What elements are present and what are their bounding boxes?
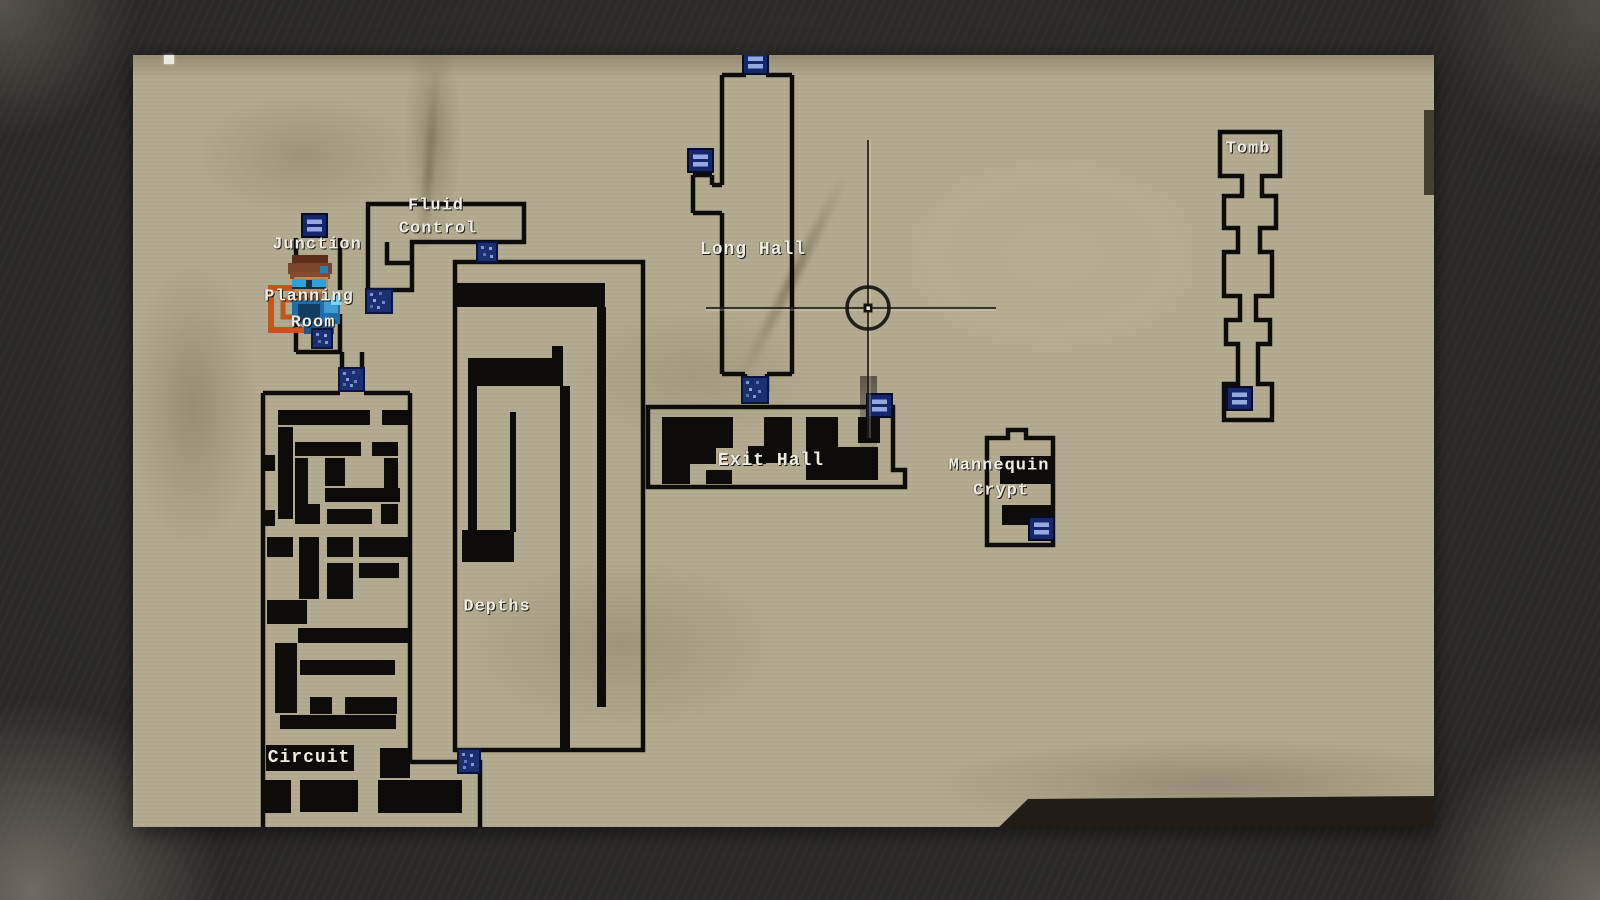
paper-tear-shadow xyxy=(997,796,1434,827)
room-label-tomb: Tomb xyxy=(1226,140,1271,159)
paper-edge-shadow xyxy=(1424,110,1434,195)
room-label-planning-room-line2: Room xyxy=(291,314,336,333)
map-paper[interactable]: Junction Fluid Control Planning Room Lon… xyxy=(133,55,1434,827)
door-marker-tomb-south xyxy=(1227,387,1252,410)
room-label-depths: Depths xyxy=(463,598,530,617)
room-label-fluid-control-line2: Control xyxy=(399,220,477,239)
door-marker-long-hall-west xyxy=(688,149,713,172)
map-canvas xyxy=(133,55,1434,827)
door-marker-corridor-circuit xyxy=(339,368,364,391)
door-markers xyxy=(302,55,1252,773)
room-label-mannequin-crypt-line1: Mannequin xyxy=(949,457,1050,476)
room-label-circuit: Circuit xyxy=(268,748,351,768)
door-marker-fluid-control-depths xyxy=(477,242,497,262)
door-marker-depths-circuit xyxy=(458,749,480,773)
room-label-junction: Junction xyxy=(272,236,362,255)
map-screen: Junction Fluid Control Planning Room Lon… xyxy=(0,0,1600,900)
door-marker-long-hall-north xyxy=(743,55,768,74)
door-marker-mannequin-crypt-south xyxy=(1029,517,1054,540)
room-label-planning-room-line1: Planning xyxy=(264,288,354,307)
room-label-fluid-control-line1: Fluid xyxy=(408,197,464,216)
door-marker-long-hall-south xyxy=(742,377,768,403)
door-marker-junction-north xyxy=(302,214,327,237)
door-marker-fluid-control-south xyxy=(366,289,392,313)
room-label-mannequin-crypt-line2: Crypt xyxy=(973,482,1029,501)
room-label-long-hall: Long Hall xyxy=(700,240,806,260)
room-label-exit-hall: Exit Hall xyxy=(718,451,824,471)
wall-fill-blocks xyxy=(263,283,1051,813)
